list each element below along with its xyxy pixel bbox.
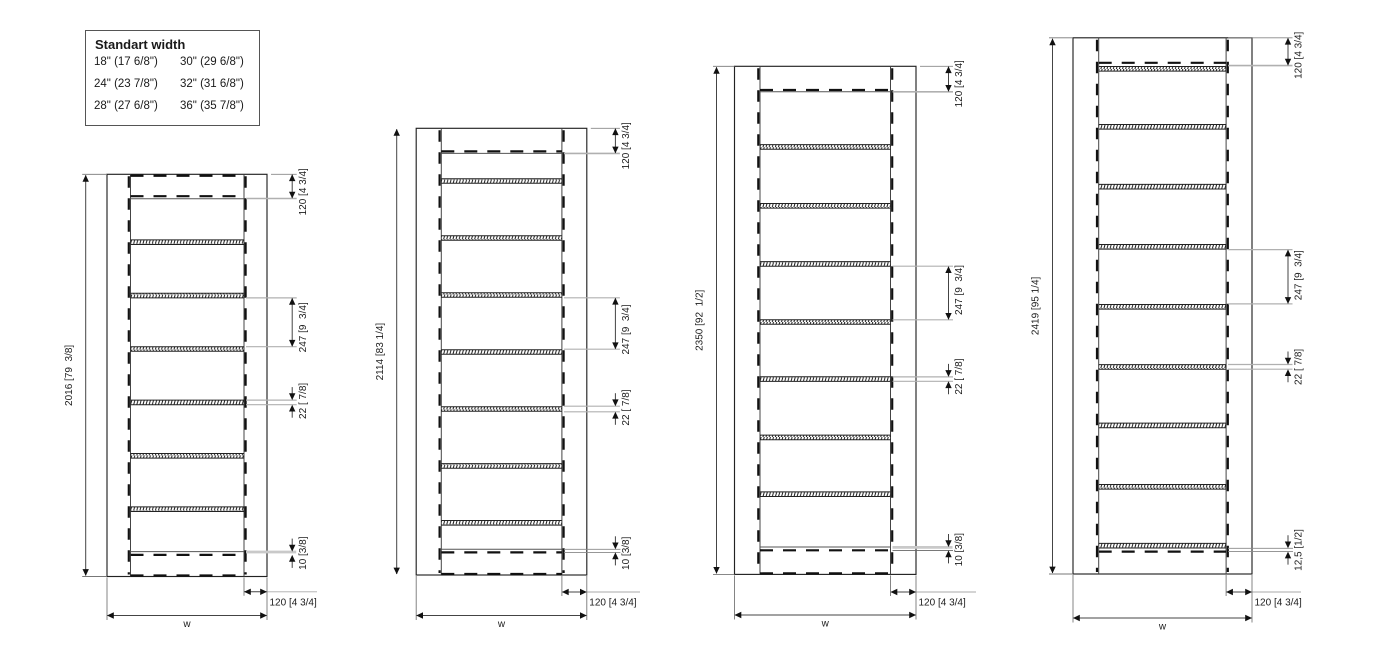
- svg-text:22 [ 7/8]: 22 [ 7/8]: [621, 389, 632, 425]
- svg-text:120 [4 3/4]: 120 [4 3/4]: [298, 168, 309, 215]
- svg-text:12,5 [1/2]: 12,5 [1/2]: [1294, 529, 1305, 571]
- svg-text:10 [3/8]: 10 [3/8]: [621, 536, 632, 570]
- svg-text:120 [4 3/4]: 120 [4 3/4]: [1294, 31, 1305, 78]
- svg-text:w: w: [1158, 622, 1167, 633]
- svg-text:w: w: [821, 619, 830, 630]
- svg-text:w: w: [497, 619, 506, 630]
- svg-text:10 [3/8]: 10 [3/8]: [954, 533, 965, 567]
- svg-text:120 [4 3/4]: 120 [4 3/4]: [919, 598, 966, 609]
- svg-text:120 [4 3/4]: 120 [4 3/4]: [589, 598, 636, 609]
- svg-text:22 [ 7/8]: 22 [ 7/8]: [954, 358, 965, 394]
- svg-text:247 [9 3/4]: 247 [9 3/4]: [954, 265, 965, 315]
- svg-text:2016 [79 3/8]: 2016 [79 3/8]: [64, 345, 75, 406]
- svg-text:120 [4 3/4]: 120 [4 3/4]: [1255, 598, 1302, 609]
- svg-text:120 [4 3/4]: 120 [4 3/4]: [621, 122, 632, 169]
- svg-text:2419 [95 1/4]: 2419 [95 1/4]: [1031, 276, 1042, 335]
- svg-text:247 [9 3/4]: 247 [9 3/4]: [1294, 250, 1305, 300]
- svg-text:22 [ 7/8]: 22 [ 7/8]: [298, 383, 309, 419]
- svg-text:22 [ 7/8]: 22 [ 7/8]: [1294, 349, 1305, 385]
- svg-text:120 [4 3/4]: 120 [4 3/4]: [954, 60, 965, 107]
- svg-text:120 [4 3/4]: 120 [4 3/4]: [270, 597, 317, 608]
- svg-text:10 [3/8]: 10 [3/8]: [298, 536, 309, 570]
- svg-text:w: w: [182, 619, 191, 630]
- svg-text:247 [9 3/4]: 247 [9 3/4]: [621, 304, 632, 354]
- svg-text:2114 [83 1/4]: 2114 [83 1/4]: [375, 323, 386, 381]
- svg-text:2350 [92 1/2]: 2350 [92 1/2]: [695, 290, 706, 351]
- svg-text:247 [9 3/4]: 247 [9 3/4]: [298, 302, 309, 352]
